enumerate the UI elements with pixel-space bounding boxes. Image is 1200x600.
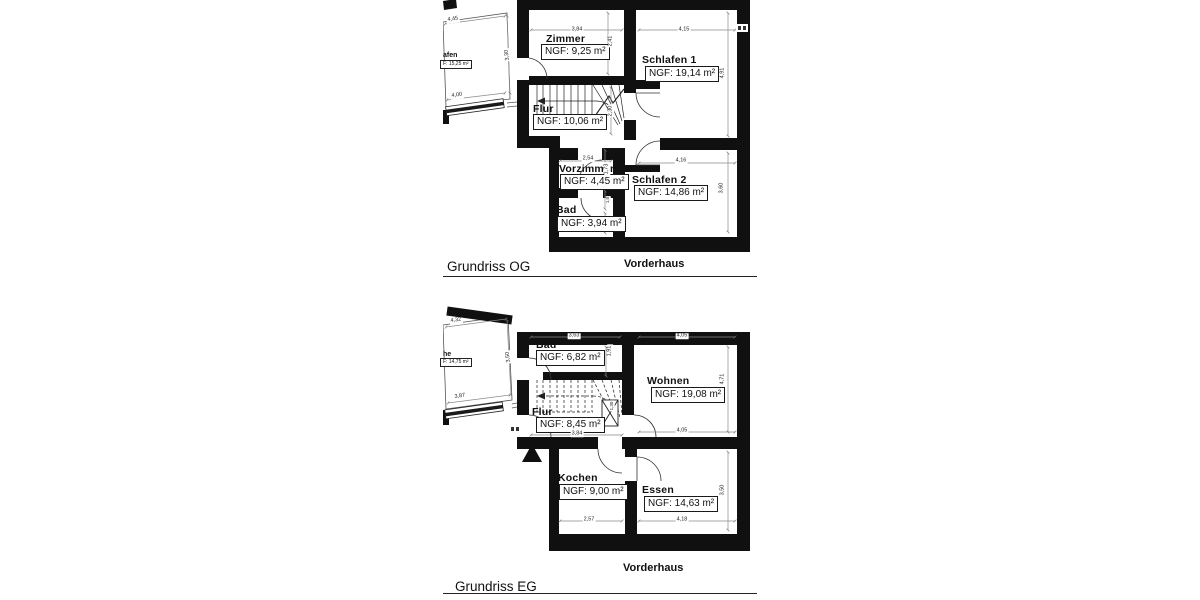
eg-dim-essen-bottom: 4,18 [676,517,689,523]
eg-dim-flur-bottom: 3,84 [571,431,584,437]
og-dim-schlafen1-right: 4,91 [720,67,726,80]
og-wall-marker-chip [736,24,748,32]
og-dim-schlafen2-top: 4,16 [675,158,688,164]
eg-room-kochen-area: NGF: 9,00 m² [559,484,628,500]
eg-room-wohnen-area: NGF: 19,08 m² [651,387,725,403]
eg-dim-kochen-bottom: 2,57 [583,517,596,523]
eg-dim-essen-right: 3,50 [720,484,726,497]
eg-room-essen-area: NGF: 14,63 m² [644,496,718,512]
eg-dim-wohnen-bottom: 4,05 [676,428,689,434]
og-dim-schlafen1-top: 4,15 [678,27,691,33]
og-dim-flur-right: 2,30 [608,105,614,118]
og-room-schlafen1-area: NGF: 19,14 m² [645,66,719,82]
og-dim-bad-right-upper: 1,0 [606,196,611,204]
og-room-flur-area: NGF: 10,06 m² [533,114,607,130]
eg-room-neighbor-area: F: 14,75 m² [440,358,472,367]
eg-dim-wohnen-right: 4,71 [720,373,726,386]
og-plan-title: Grundriss OG [447,259,530,274]
og-building-label: Vorderhaus [624,258,684,270]
eg-dim-wohnen-top: 4,05 [676,333,689,339]
og-room-schlafen2-area: NGF: 14,86 m² [634,185,708,201]
og-room-neighbor-area: F: 15,25 m² [440,60,472,69]
eg-room-essen-label: Essen [642,484,674,496]
eg-dim-stair-shaft: 1,30 [610,401,615,412]
eg-building-label: Vorderhaus [623,562,683,574]
eg-room-bad-area: NGF: 6,82 m² [536,350,605,366]
og-dim-zimmer-top: 3,84 [571,27,584,33]
og-dim-zimmer-right: 2,41 [608,35,614,48]
eg-underline [443,593,757,594]
og-room-zimmer-area: NGF: 9,25 m² [541,44,610,60]
eg-room-neighbor-label: he [443,351,451,358]
og-room-vorzimmer-area: NGF: 4,45 m² [560,174,629,190]
eg-room-kochen-label: Kochen [558,472,598,484]
og-dim-schlafen2-right: 3,60 [719,182,725,195]
og-room-bad-label: Bad [556,204,576,216]
og-room-neighbor-label: afen [443,52,457,59]
eg-plan-title: Grundriss EG [455,579,537,594]
eg-plan-drawing [443,300,757,600]
eg-wall-marker-chip [509,425,521,433]
og-underline [443,276,757,277]
eg-room-wohnen-label: Wohnen [647,375,689,387]
og-dim-vorzimmer-right: 1,73 [604,163,610,176]
og-room-schlafen1-label: Schlafen 1 [642,54,697,66]
og-room-bad-area: NGF: 3,94 m² [557,216,626,232]
og-dim-vorzimmer-top: 2,54 [582,156,595,162]
eg-dim-bad-top: 3,63 [568,333,581,339]
eg-dim-bad-right: 1,91 [607,345,613,358]
